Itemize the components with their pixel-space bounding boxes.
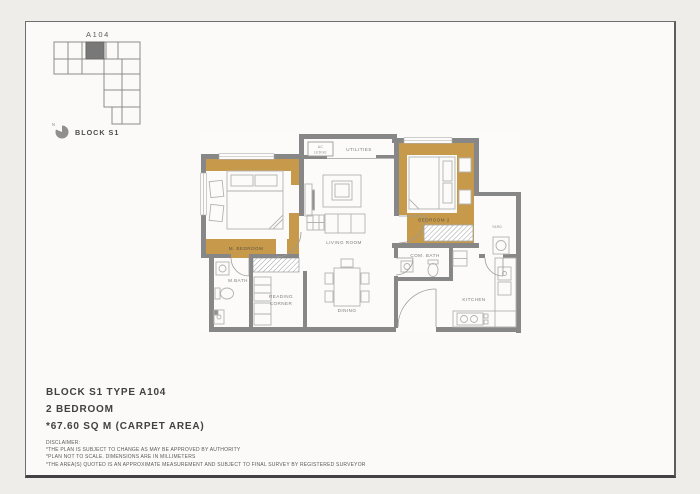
label-reading-2: CORNER [270,301,293,306]
label-reading-1: READING [269,294,293,299]
disclaimer-heading: DISCLAIMER: [46,440,476,447]
label-ac: AC [318,145,324,149]
title-block-type: BLOCK S1 TYPE A104 [46,384,476,401]
title-bedrooms: 2 BEDROOM [46,401,476,418]
label-bedroom-2: BEDROOM 2 [418,218,450,223]
north-icon [55,125,68,139]
nightstand-2 [459,190,471,204]
plan-sheet: A104 N BLOCK S1 [25,21,676,478]
label-com-bath: COM. BATH [410,253,439,258]
north-label: N [52,122,55,127]
label-master-bath: M.BATH [228,278,248,283]
floor-plan: M. BEDROOM M.BATH READING CORNER LIVING … [191,111,531,351]
label-dining: DINING [338,308,357,313]
nightstand-1 [459,158,471,172]
key-plan-unit-label: A104 [86,30,110,39]
label-living-room: LIVING ROOM [326,240,362,245]
highlighted-unit [86,42,104,59]
disclaimer-line-1: *THE PLAN IS SUBJECT TO CHANGE AS MAY BE… [46,447,476,454]
title-area: *67.60 SQ M (CARPET AREA) [46,418,476,435]
disclaimer-line-3: *THE AREA(S) QUOTED IS AN APPROXIMATE ME… [46,462,476,469]
disclaimer-line-2: *PLAN NOT TO SCALE. DIMENSIONS ARE IN MI… [46,454,476,461]
key-plan: A104 N BLOCK S1 [36,26,176,149]
disclaimer: DISCLAIMER: *THE PLAN IS SUBJECT TO CHAN… [46,440,476,469]
label-yard: YARD [492,225,503,229]
label-master-bedroom: M. BEDROOM [229,246,264,251]
block-label: BLOCK S1 [75,128,119,137]
key-plan-drawing: A104 N BLOCK S1 [36,26,176,144]
unit-details: BLOCK S1 TYPE A104 2 BEDROOM *67.60 SQ M… [46,384,476,469]
floor-plan-drawing: M. BEDROOM M.BATH READING CORNER LIVING … [191,111,531,346]
label-kitchen: KITCHEN [462,297,485,302]
label-ledge: LEDGE [314,151,327,155]
label-utilities: UTILITIES [346,147,372,152]
